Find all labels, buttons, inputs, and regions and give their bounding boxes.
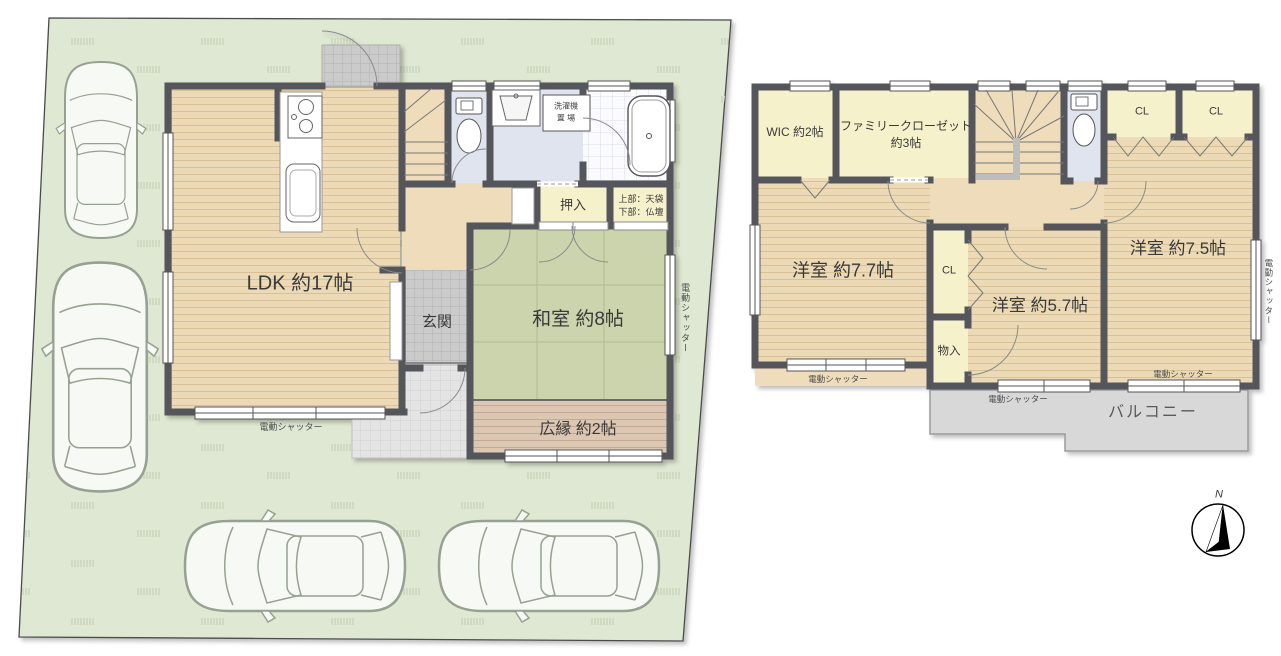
label-ldk: LDK 約17帖 [247, 273, 354, 296]
floor-plan-page: LDK 約17帖 玄関 和室 約8帖 広縁 約2帖 押入 上部：天袋 下部：仏壇… [0, 0, 1281, 656]
car-3 [185, 510, 405, 622]
bathtub-icon [628, 96, 670, 176]
label-cl-a: CL [1135, 106, 1149, 119]
label-family-closet: ファミリークローゼット [840, 120, 972, 134]
stairs-area-1f [402, 88, 448, 185]
vanity-icon [492, 90, 540, 126]
stair-handrail [976, 174, 1020, 180]
floor1-plan [163, 31, 675, 462]
label-butsudan: 下部：仏壇 [618, 207, 663, 217]
toilet-icon-2f [1071, 94, 1097, 146]
kitchen-sink-icon [286, 164, 320, 222]
label-compass-north: N [1215, 489, 1223, 502]
label-shutter-2f-mid: 電動シャッター [988, 395, 1048, 405]
label-shutter-2f-side: 電動シャッター [1263, 259, 1273, 326]
label-oshiire: 押入 [560, 199, 586, 214]
toilet-icon-1f [456, 98, 482, 153]
label-laundry-1: 洗濯機 [554, 101, 578, 110]
label-family-closet-size: 約3帖 [891, 137, 922, 151]
label-room57: 洋室 約5.7帖 [992, 296, 1088, 316]
label-balcony: バルコニー [1108, 404, 1198, 422]
butsudan-closet [612, 185, 670, 226]
label-cl-b: CL [1209, 106, 1223, 119]
hall-1f-lower [402, 228, 470, 270]
car-1 [56, 62, 146, 238]
car-4 [439, 510, 659, 622]
label-hiroen: 広縁 約2帖 [539, 421, 616, 439]
label-wic: WIC 約2帖 [766, 126, 823, 140]
label-tenbukuro: 上部：天袋 [618, 194, 663, 204]
porch-tiles [322, 45, 400, 86]
label-shutter-1f-right: 電動シャッター [680, 283, 690, 353]
balcony-area [930, 390, 1248, 451]
room75-floor [1104, 140, 1252, 386]
kitchen-counter [280, 92, 322, 232]
stair-newel [1013, 138, 1020, 180]
label-cl-mid: CL [942, 265, 956, 278]
floor-plan-canvas [0, 0, 1281, 656]
label-shutter-1f-bottom: 電動シャッター [259, 422, 322, 432]
compass-icon [1192, 504, 1244, 556]
label-genkan: 玄関 [422, 313, 452, 330]
label-monoire: 物入 [938, 345, 961, 358]
label-room77: 洋室 約7.7帖 [792, 261, 894, 282]
label-washitsu: 和室 約8帖 [532, 309, 624, 331]
label-shutter-2f-right: 電動シャッター [1153, 370, 1213, 380]
label-shutter-2f-left: 電動シャッター [808, 375, 868, 385]
label-room75: 洋室 約7.5帖 [1130, 239, 1226, 259]
stove-icon [288, 96, 322, 138]
label-laundry-2: 置 場 [557, 113, 575, 122]
car-2 [42, 263, 158, 492]
